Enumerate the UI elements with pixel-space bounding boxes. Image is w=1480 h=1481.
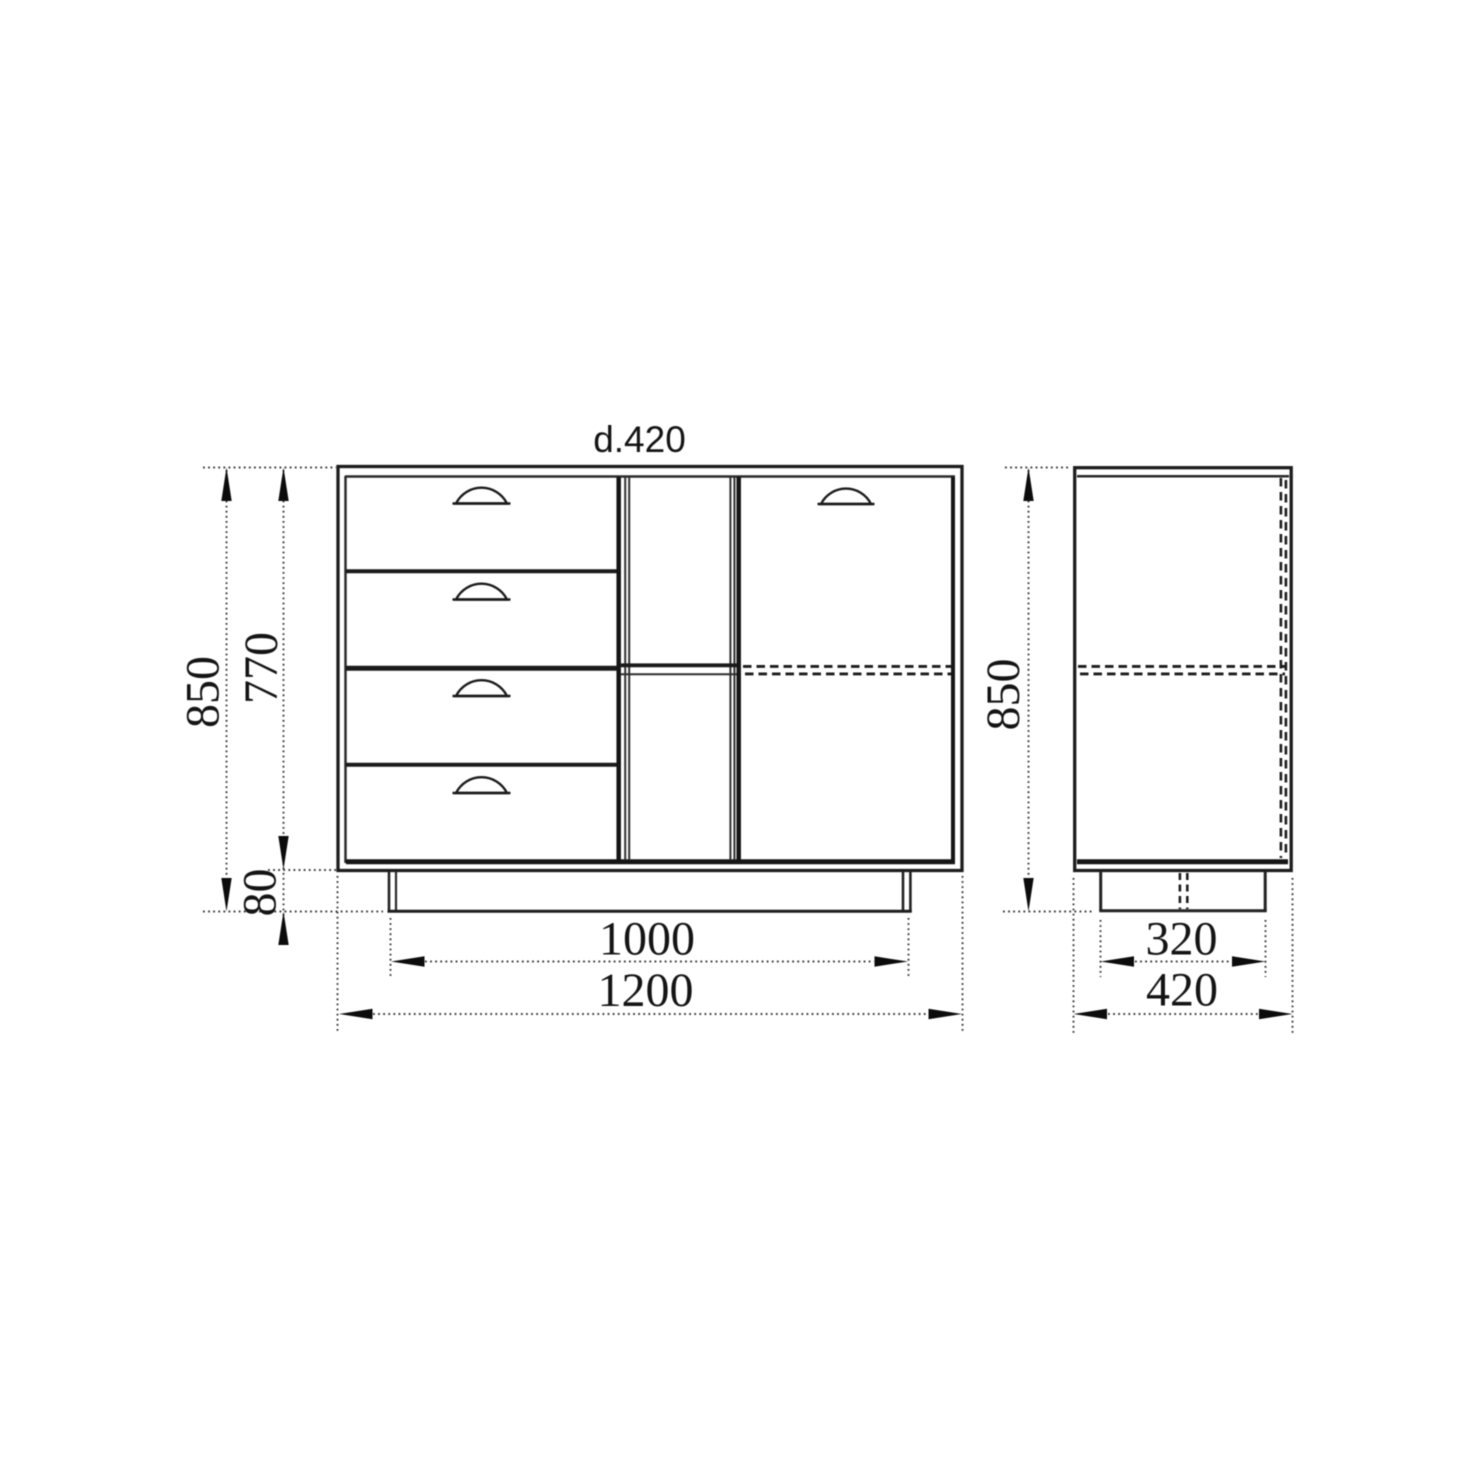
svg-text:420: 420: [1146, 964, 1218, 1017]
svg-text:770: 770: [235, 632, 288, 704]
svg-text:850: 850: [977, 659, 1030, 731]
svg-text:320: 320: [1146, 913, 1218, 966]
svg-text:850: 850: [177, 656, 230, 728]
svg-text:d.420: d.420: [593, 419, 686, 460]
svg-text:1000: 1000: [599, 913, 695, 966]
svg-text:80: 80: [234, 869, 287, 917]
svg-text:1200: 1200: [598, 964, 694, 1017]
